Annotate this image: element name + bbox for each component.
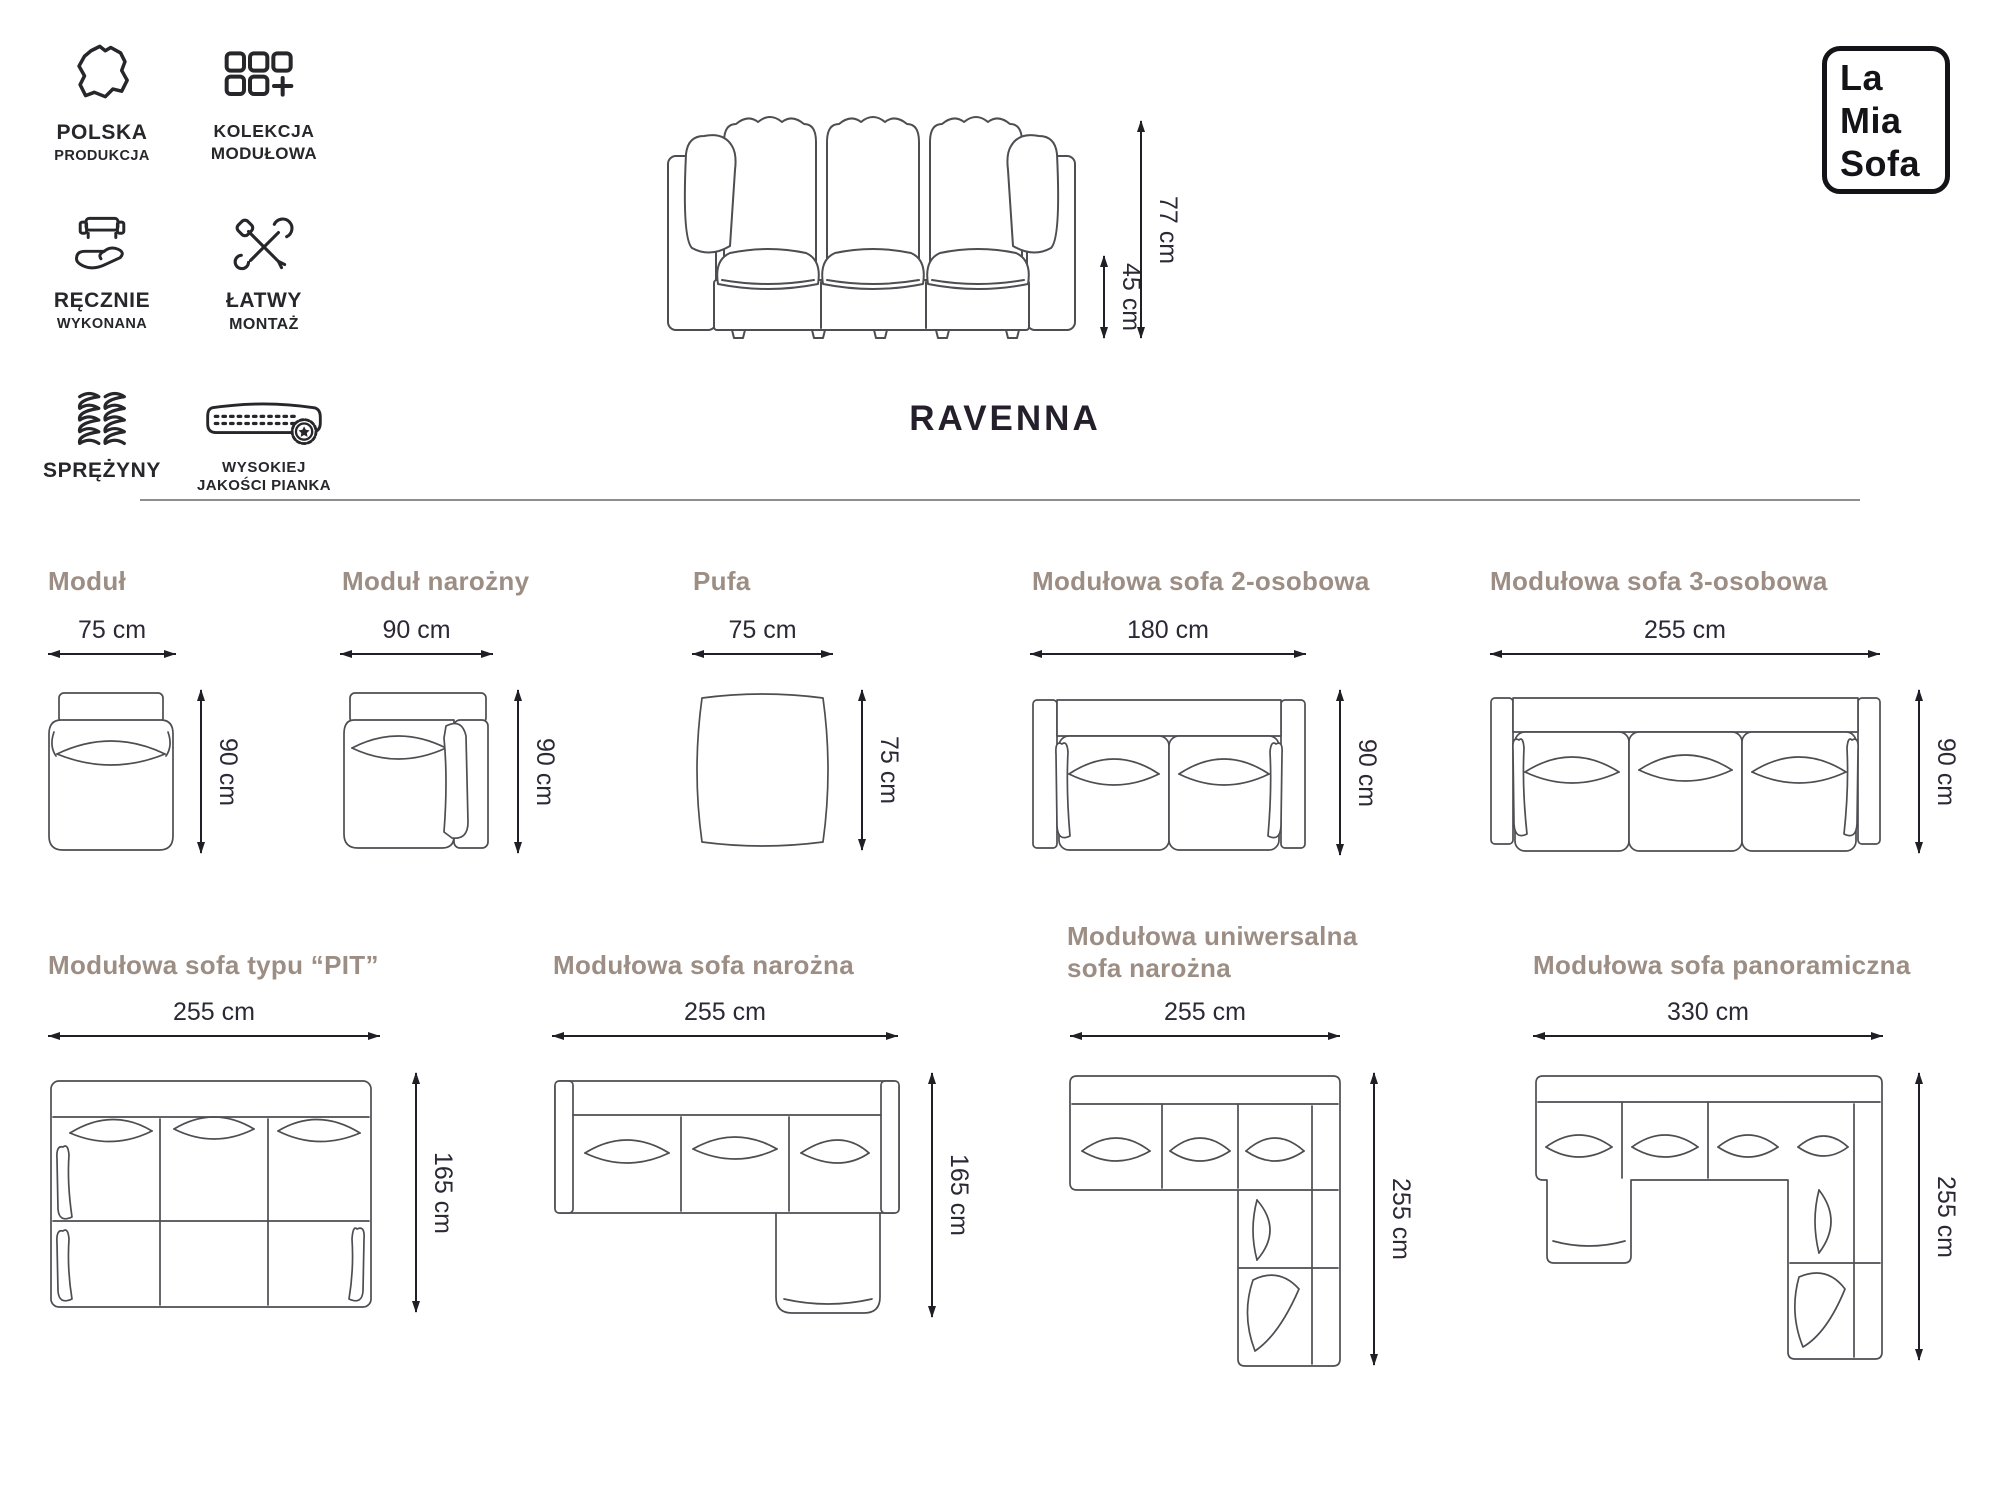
sofa-height-value: 77 cm <box>1153 195 1182 263</box>
feature-label: RĘCZNIE <box>54 289 150 313</box>
feature-sublabel: JAKOŚCI PIANKA <box>197 477 331 494</box>
width-value: 255 cm <box>552 998 898 1027</box>
depth-value: 90 cm <box>1352 738 1381 806</box>
width-arrow <box>552 1035 898 1037</box>
width-arrow <box>1070 1035 1340 1037</box>
brand-logo-line: La <box>1840 56 1945 99</box>
module-width-dimension: 90 cm <box>340 616 493 655</box>
module-width-dimension: 255 cm <box>48 998 380 1037</box>
width-value: 180 cm <box>1030 616 1306 645</box>
module-width-dimension: 75 cm <box>692 616 833 655</box>
width-arrow <box>1490 653 1880 655</box>
module-title: Moduł narożny <box>342 566 529 597</box>
depth-arrow <box>415 1073 417 1312</box>
modular-collection-icon <box>221 30 307 112</box>
module-drawing-pufa <box>692 690 833 850</box>
handmade-icon <box>68 198 136 280</box>
module-depth-dimension: 165 cm <box>931 1073 975 1317</box>
width-arrow <box>48 1035 380 1037</box>
depth-value: 165 cm <box>428 1152 457 1234</box>
module-depth-dimension: 90 cm <box>517 690 561 853</box>
module-depth-dimension: 165 cm <box>415 1073 459 1312</box>
feature-wysokiej-jakosci-pianka: WYSOKIEJ JAKOŚCI PIANKA <box>178 368 350 494</box>
depth-arrow <box>517 690 519 853</box>
feature-recznie-wykonana: RĘCZNIE WYKONANA <box>26 198 178 368</box>
width-value: 255 cm <box>48 998 380 1027</box>
depth-arrow <box>1918 690 1920 853</box>
module-depth-dimension: 90 cm <box>1918 690 1962 853</box>
feature-label: POLSKA <box>56 121 147 145</box>
module-drawing-modul-narozny <box>340 690 493 853</box>
depth-value: 75 cm <box>874 736 903 804</box>
feature-label: KOLEKCJA <box>213 121 314 142</box>
module-depth-dimension: 90 cm <box>200 690 244 853</box>
module-width-dimension: 330 cm <box>1533 998 1883 1037</box>
module-depth-dimension: 90 cm <box>1339 690 1383 855</box>
module-width-dimension: 75 cm <box>48 616 176 655</box>
feature-sublabel: MODUŁOWA <box>211 144 317 164</box>
depth-value: 255 cm <box>1931 1176 1960 1258</box>
sofa-height-dimension: 77 cm <box>1140 121 1184 338</box>
brand-logo: La Mia Sofa <box>1822 46 1950 194</box>
module-drawing-panoramiczna <box>1533 1073 1885 1363</box>
depth-value: 255 cm <box>1386 1178 1415 1260</box>
module-title: Modułowa sofa 3-osobowa <box>1490 566 1828 597</box>
width-value: 255 cm <box>1490 616 1880 645</box>
section-divider <box>140 499 1860 501</box>
sofa-front-drawing <box>663 90 1080 340</box>
module-drawing-sofa-3 <box>1488 690 1883 853</box>
depth-value: 165 cm <box>944 1154 973 1236</box>
depth-arrow <box>1339 690 1341 855</box>
module-title: Modułowa uniwersalna sofa narożna <box>1067 920 1367 984</box>
feature-sprezyny: SPRĘŻYNY <box>26 368 178 494</box>
module-depth-dimension: 75 cm <box>861 690 905 850</box>
depth-value: 90 cm <box>213 737 242 805</box>
sofa-height-arrow <box>1140 121 1142 338</box>
width-arrow <box>48 653 176 655</box>
module-title: Moduł <box>48 566 126 597</box>
module-title: Modułowa sofa narożna <box>553 950 854 981</box>
module-drawing-modul <box>45 690 177 853</box>
brand-logo-line: Sofa <box>1840 142 1945 185</box>
module-depth-dimension: 255 cm <box>1373 1073 1417 1365</box>
brand-logo-line: Mia <box>1840 99 1945 142</box>
module-title: Modułowa sofa panoramiczna <box>1533 950 1911 981</box>
module-drawing-narozna <box>552 1073 902 1317</box>
module-title: Modułowa sofa 2-osobowa <box>1032 566 1370 597</box>
high-quality-foam-icon <box>201 368 327 450</box>
feature-label: ŁATWY <box>226 289 302 313</box>
module-width-dimension: 255 cm <box>552 998 898 1037</box>
width-arrow <box>1030 653 1306 655</box>
depth-arrow <box>1918 1073 1920 1360</box>
module-width-dimension: 180 cm <box>1030 616 1306 655</box>
depth-value: 90 cm <box>530 737 559 805</box>
width-value: 75 cm <box>48 616 176 645</box>
module-title: Pufa <box>693 566 751 597</box>
page-title: RAVENNA <box>795 399 1215 439</box>
depth-value: 90 cm <box>1931 737 1960 805</box>
features-list: POLSKA PRODUKCJA KOLEKCJA MODUŁOWA RĘCZN… <box>26 30 362 494</box>
module-drawing-sofa-2 <box>1030 690 1308 855</box>
module-depth-dimension: 255 cm <box>1918 1073 1962 1360</box>
depth-arrow <box>200 690 202 853</box>
feature-sublabel: PRODUKCJA <box>54 148 149 164</box>
width-value: 330 cm <box>1533 998 1883 1027</box>
feature-label: SPRĘŻYNY <box>43 459 161 483</box>
feature-polska-produkcja: POLSKA PRODUKCJA <box>26 30 178 198</box>
feature-kolekcja-modulowa: KOLEKCJA MODUŁOWA <box>178 30 350 198</box>
feature-label: WYSOKIEJ <box>222 459 306 476</box>
seat-height-arrow <box>1103 256 1105 338</box>
module-drawing-uniwersalna <box>1067 1073 1343 1370</box>
width-arrow <box>340 653 493 655</box>
depth-arrow <box>931 1073 933 1317</box>
depth-arrow <box>861 690 863 850</box>
poland-map-icon <box>71 30 133 112</box>
feature-latwy-montaz: ŁATWY MONTAŻ <box>178 198 350 368</box>
easy-assembly-icon <box>231 198 297 280</box>
width-value: 75 cm <box>692 616 833 645</box>
module-drawing-pit <box>48 1073 385 1312</box>
module-title: Modułowa sofa typu “PIT” <box>48 950 379 981</box>
width-arrow <box>1533 1035 1883 1037</box>
depth-arrow <box>1373 1073 1375 1365</box>
feature-sublabel: WYKONANA <box>57 316 147 332</box>
width-value: 90 cm <box>340 616 493 645</box>
feature-sublabel: MONTAŻ <box>229 316 299 334</box>
module-width-dimension: 255 cm <box>1070 998 1340 1037</box>
width-arrow <box>692 653 833 655</box>
width-value: 255 cm <box>1070 998 1340 1027</box>
module-width-dimension: 255 cm <box>1490 616 1880 655</box>
springs-icon <box>68 368 136 450</box>
